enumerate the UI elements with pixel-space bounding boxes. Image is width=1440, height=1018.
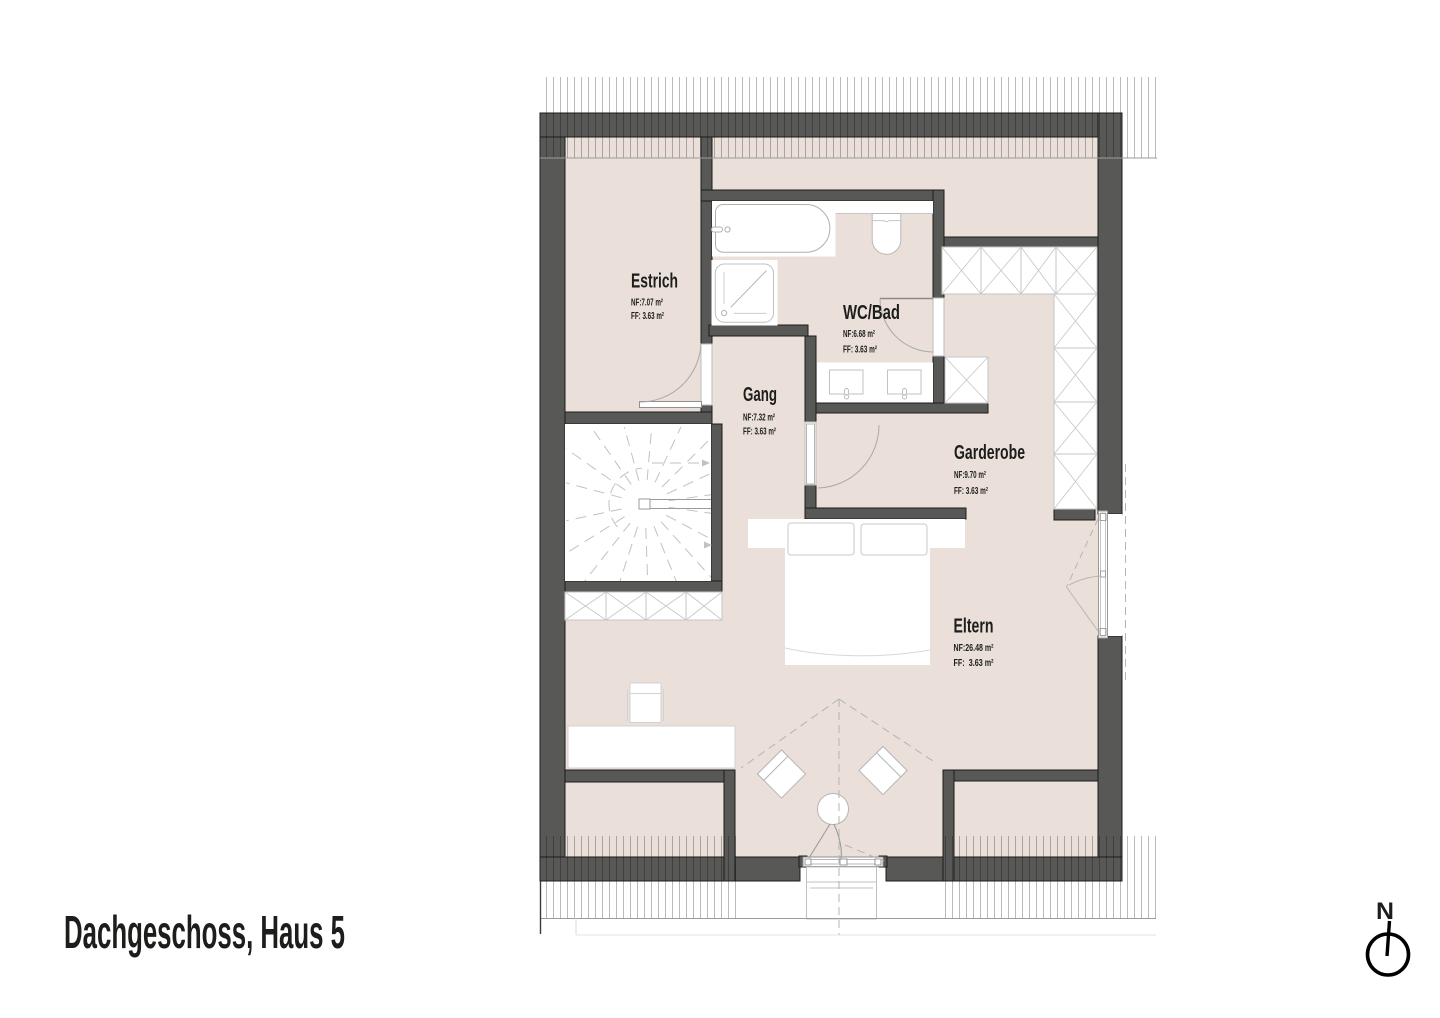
svg-text:WC/Bad: WC/Bad <box>843 301 900 324</box>
svg-text:NF:7.32 m²: NF:7.32 m² <box>743 413 775 424</box>
svg-text:Eltern: Eltern <box>954 615 994 638</box>
svg-text:Dachgeschoss, Haus 5: Dachgeschoss, Haus 5 <box>64 906 345 958</box>
svg-text:NF:9.70 m²: NF:9.70 m² <box>954 470 986 481</box>
svg-text:FF: 3.63 m²: FF: 3.63 m² <box>954 658 994 669</box>
svg-text:Gang: Gang <box>743 383 777 406</box>
svg-text:FF: 3.63 m²: FF: 3.63 m² <box>743 427 776 438</box>
svg-text:NF:26.48 m²: NF:26.48 m² <box>954 643 994 654</box>
svg-text:FF: 3.63 m²: FF: 3.63 m² <box>954 486 988 497</box>
svg-text:Garderobe: Garderobe <box>954 441 1025 464</box>
svg-text:FF: 3.63 m²: FF: 3.63 m² <box>843 345 877 356</box>
svg-text:FF: 3.63 m²: FF: 3.63 m² <box>631 311 664 322</box>
svg-text:NF:6.68 m²: NF:6.68 m² <box>843 329 875 340</box>
svg-text:NF:7.07 m²: NF:7.07 m² <box>631 297 663 308</box>
svg-text:N: N <box>1376 898 1394 925</box>
svg-text:Estrich: Estrich <box>631 270 678 293</box>
